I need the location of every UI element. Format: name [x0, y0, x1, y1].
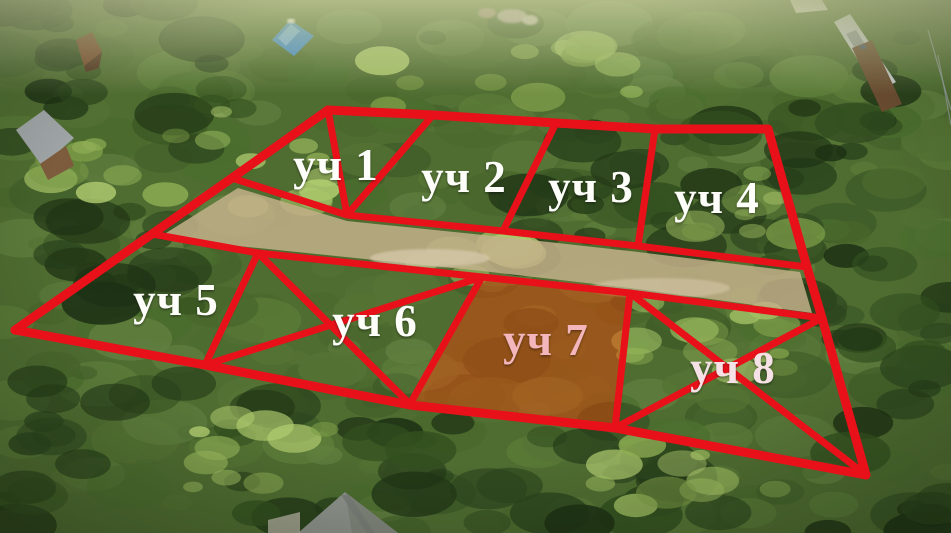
plot-label-uch-8: уч 8 — [690, 343, 776, 393]
scene-svg: уч 1уч 2уч 3уч 4уч 5уч 6уч 7уч 8 — [0, 0, 951, 533]
plot-label-uch-2: уч 2 — [421, 152, 507, 202]
plot-label-uch-6: уч 6 — [332, 296, 418, 346]
plot-label-uch-1: уч 1 — [293, 140, 379, 190]
plot-label-uch-7: уч 7 — [503, 315, 589, 365]
aerial-photo: уч 1уч 2уч 3уч 4уч 5уч 6уч 7уч 8 — [0, 0, 951, 533]
plot-label-uch-4: уч 4 — [674, 173, 760, 223]
plot-label-uch-5: уч 5 — [133, 275, 219, 325]
plot-label-uch-3: уч 3 — [548, 162, 634, 212]
